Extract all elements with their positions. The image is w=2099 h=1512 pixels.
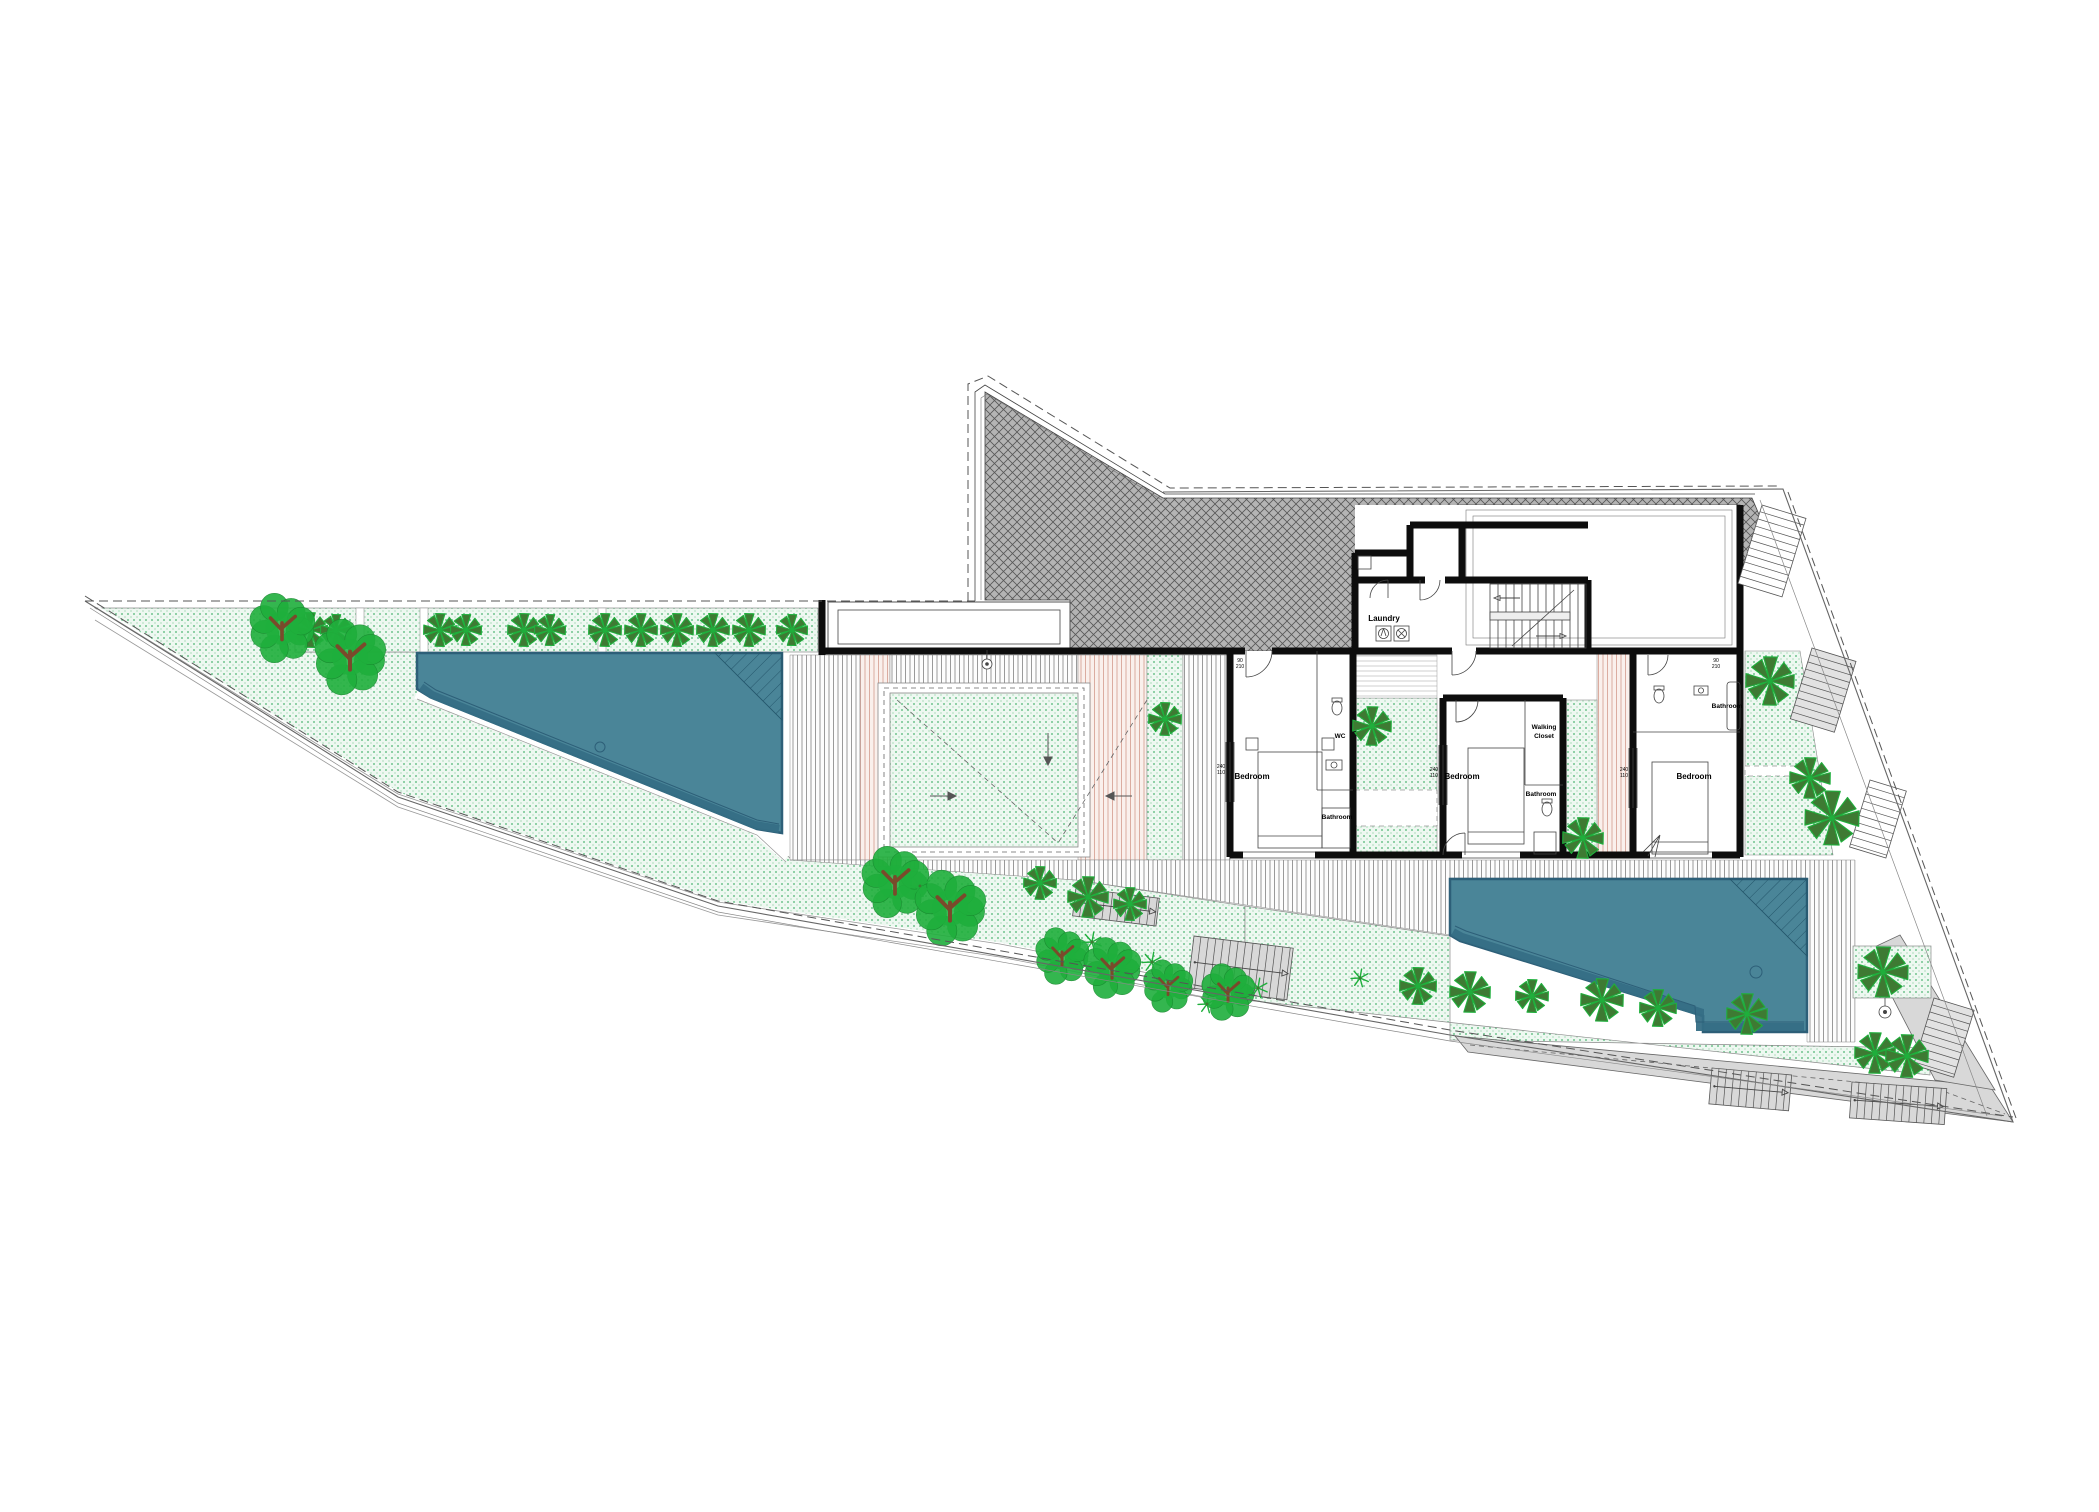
deck-salmon-3 bbox=[1597, 651, 1633, 855]
label-bedroom-1: Bedroom bbox=[1234, 772, 1269, 781]
label-walking-closet-2: Closet bbox=[1534, 733, 1555, 740]
label-bedroom-2: Bedroom bbox=[1444, 772, 1479, 781]
stair-flight bbox=[1709, 1068, 1792, 1111]
svg-text:110: 110 bbox=[1217, 770, 1225, 776]
label-walking-closet-1: Walking bbox=[1532, 724, 1557, 731]
window-dimension-tag: 240 110 bbox=[1430, 767, 1439, 779]
window-dimension-tag: 240 110 bbox=[1620, 767, 1629, 779]
window-dimension-tag: 240 110 bbox=[1217, 764, 1226, 776]
svg-text:210: 210 bbox=[1712, 664, 1721, 670]
svg-text:110: 110 bbox=[1620, 773, 1628, 779]
pinwheel-tree-icon bbox=[1516, 980, 1549, 1013]
deck-lawn-strip bbox=[1147, 655, 1183, 860]
label-bathroom-1: Bathroom bbox=[1322, 814, 1353, 821]
label-bathroom-2: Bathroom bbox=[1526, 791, 1557, 798]
svg-text:110: 110 bbox=[1430, 773, 1438, 779]
label-wc: WC bbox=[1335, 733, 1346, 740]
pinwheel-tree-icon bbox=[1450, 972, 1491, 1013]
label-laundry: Laundry bbox=[1368, 614, 1400, 623]
deck-gray-1 bbox=[790, 655, 860, 860]
light-pole-icon bbox=[1879, 998, 1891, 1018]
stair-flight bbox=[1849, 1082, 1946, 1125]
svg-text:210: 210 bbox=[1236, 664, 1245, 670]
label-bathroom-3: Bathroom bbox=[1712, 703, 1743, 710]
skylight-band bbox=[828, 602, 1070, 652]
floor-plan-canvas: Laundry Bedroom WC Bathroom Bedroom Walk… bbox=[0, 0, 2099, 1512]
label-bedroom-3: Bedroom bbox=[1676, 772, 1711, 781]
deck-gray-3 bbox=[1183, 655, 1230, 860]
